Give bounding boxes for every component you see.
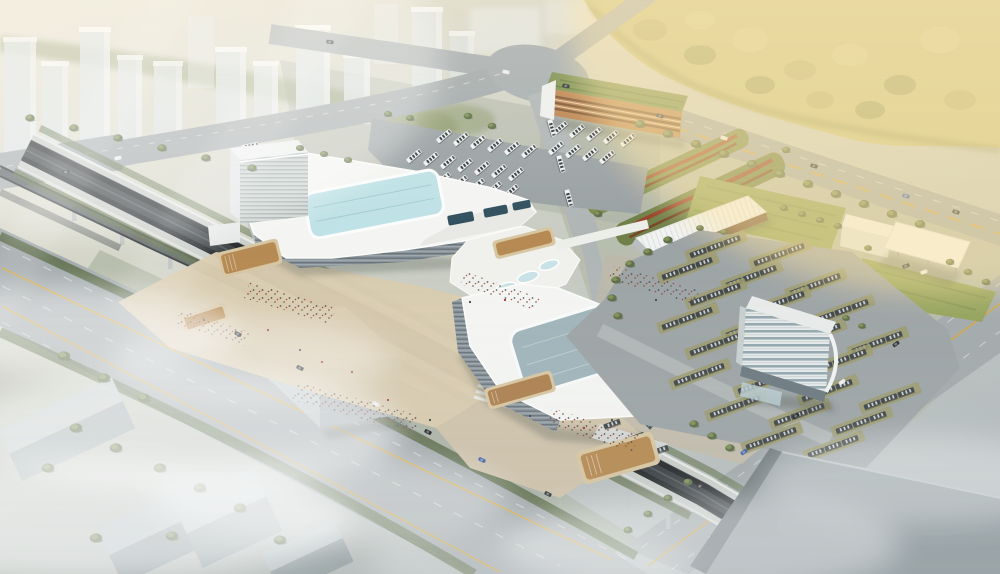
color-grade	[0, 0, 1000, 574]
aerial-rendering	[0, 0, 1000, 574]
scene-canvas	[0, 0, 1000, 574]
atmosphere	[0, 0, 1000, 574]
